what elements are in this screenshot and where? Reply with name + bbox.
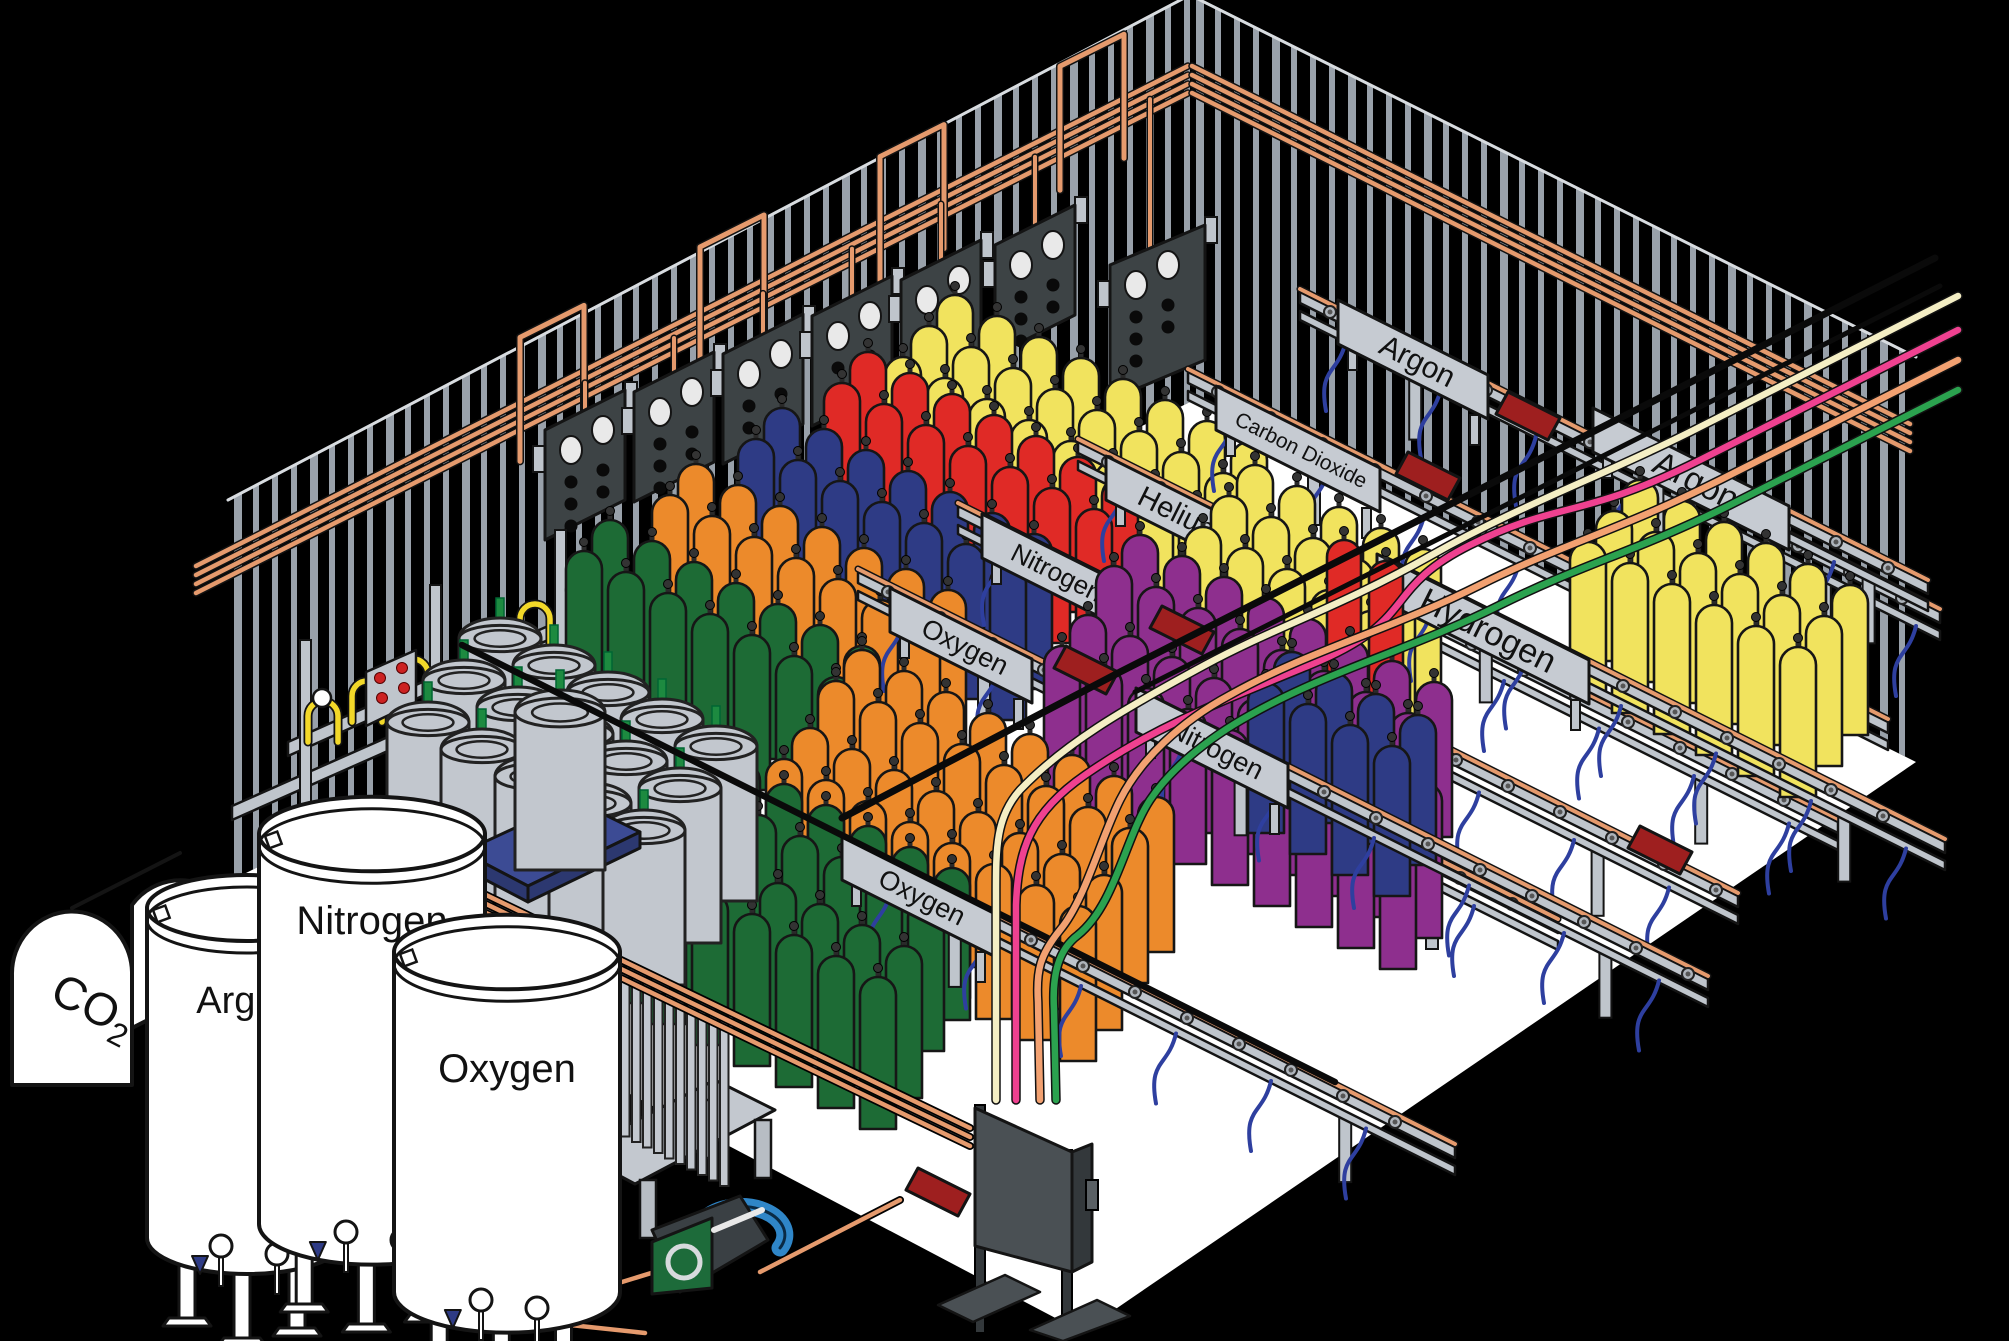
cylinder-valve <box>734 472 743 481</box>
cylinder-valve <box>1051 376 1060 385</box>
rail-valve <box>1714 888 1719 893</box>
cylinder-valve <box>1309 525 1318 534</box>
sign-post <box>1270 804 1279 834</box>
panel-port <box>597 486 610 499</box>
cylinder-valve <box>1178 543 1187 552</box>
panel-gauge <box>592 416 614 444</box>
sign-post <box>1571 700 1580 730</box>
cylinder-valve <box>925 313 934 322</box>
cylinder-valve <box>920 510 929 519</box>
rail-valve <box>1558 810 1563 815</box>
wall-stud <box>1329 58 1335 477</box>
rail-valve <box>1673 710 1678 715</box>
cylinder-valve <box>942 679 951 688</box>
rail-valve <box>1834 540 1839 545</box>
cylinder-valve <box>776 493 785 502</box>
cylinder-valve <box>864 339 873 348</box>
cylinder-valve <box>899 344 908 353</box>
wall-stud <box>1899 343 1905 760</box>
cylinder-valve <box>967 334 976 343</box>
panel-gauge <box>1010 251 1032 279</box>
cylinder-valve <box>890 757 899 766</box>
cylinder-valve <box>1382 548 1391 557</box>
cylinder-valve <box>848 736 857 745</box>
rail-valve <box>1426 842 1431 847</box>
wall-stud <box>1272 30 1280 449</box>
panel-port <box>654 482 667 495</box>
cylinder-valve <box>1177 439 1186 448</box>
cylinder-valve <box>1035 324 1044 333</box>
cylinder-valve <box>1067 428 1076 437</box>
gas-plant-illustration: ArgonCarbon DioxideHeliumNitrogenOxygenA… <box>0 0 2009 1341</box>
panel-bracket <box>622 408 634 434</box>
vaporizer-tube <box>720 1016 729 1186</box>
cylinder-valve <box>1084 602 1093 611</box>
cylinder-valve <box>1652 519 1661 528</box>
panel-port <box>597 464 610 477</box>
cylinder-valve <box>1135 418 1144 427</box>
cylinder-valve <box>1804 551 1813 560</box>
cylinder-valve <box>860 535 869 544</box>
wall-stud <box>1557 172 1563 590</box>
cylinder-valve <box>864 813 873 822</box>
cylinder-valve <box>1119 366 1128 375</box>
panel-port <box>654 460 667 473</box>
cylinder-valve <box>1267 504 1276 513</box>
sign-post <box>976 952 985 982</box>
cylinder-valve <box>1710 592 1719 601</box>
cylinder-valve <box>1293 473 1302 482</box>
tank-label: Oxygen <box>438 1047 576 1091</box>
cylinder-valve <box>941 365 950 374</box>
cylinder-valve <box>862 437 871 446</box>
rail-valve <box>1424 494 1429 499</box>
cylinder-valve <box>948 855 957 864</box>
cylinder-valve <box>664 580 673 589</box>
cylinder-valve <box>1006 454 1015 463</box>
cylinder-valve <box>1220 564 1229 573</box>
valve-wheel <box>335 1221 357 1243</box>
rim-tab <box>265 832 282 849</box>
cylinder-valve <box>1058 633 1067 642</box>
panel-port <box>1130 355 1143 368</box>
rail-valve <box>1289 1068 1294 1073</box>
cylinder-valve <box>1084 794 1093 803</box>
cylinder-valve <box>1016 820 1025 829</box>
rail-valve <box>1506 784 1511 789</box>
panel-bracket <box>1205 217 1217 243</box>
oxygen-bulk-tank: Oxygen <box>394 915 620 1341</box>
cylinder-valve <box>874 964 883 973</box>
panel-bracket <box>533 446 545 472</box>
cylinder-valve <box>948 381 957 390</box>
cylinder-valve <box>1372 681 1381 690</box>
control-lamp <box>375 673 386 684</box>
vaporizer-tube <box>676 994 685 1164</box>
cylinder-valve <box>1694 540 1703 549</box>
panel-port <box>1162 299 1175 312</box>
wall-stud <box>1367 77 1373 496</box>
cylinder-valve <box>708 503 717 512</box>
rail-valve <box>1730 772 1735 777</box>
cylinder-valve <box>932 778 941 787</box>
cylinder-valve <box>948 830 957 839</box>
cylinder-valve <box>900 933 909 942</box>
rail-valve <box>1478 868 1483 873</box>
cylinder-valve <box>1668 571 1677 580</box>
tank-body <box>394 952 620 1333</box>
rail-valve <box>1678 746 1683 751</box>
panel-gauge <box>916 286 938 314</box>
cylinder-valve <box>1346 712 1355 721</box>
panel-gauge <box>827 322 849 350</box>
panel-port <box>743 400 756 413</box>
cylinder-valve <box>790 922 799 931</box>
cylinder-valve <box>1100 862 1109 871</box>
rail-valve <box>1454 758 1459 763</box>
cylinder-valve <box>1241 535 1250 544</box>
vaporizer-tube <box>709 1011 718 1181</box>
panel-port <box>654 438 667 451</box>
cylinder-valve <box>1184 696 1193 705</box>
cylinder-valve <box>1000 752 1009 761</box>
cylinder-valve <box>1346 627 1355 636</box>
rail-valve <box>1626 720 1631 725</box>
rim-tab <box>400 950 417 967</box>
cylinder-valve <box>806 715 815 724</box>
cylinder-valve <box>780 771 789 780</box>
wall-stud <box>1253 20 1259 439</box>
valve-wheel <box>470 1289 492 1311</box>
cylinder-valve <box>878 489 887 498</box>
cylinder-valve <box>822 792 831 801</box>
vaporizer-tube <box>643 978 652 1148</box>
rail-valve <box>1829 788 1834 793</box>
panel-gauge <box>1157 251 1179 279</box>
panel-bracket <box>711 370 723 396</box>
panel-port <box>565 498 578 511</box>
cylinder-valve <box>1093 397 1102 406</box>
cylinder-valve <box>922 412 931 421</box>
rail-valve <box>1530 894 1535 899</box>
cylinder-valve <box>1283 556 1292 565</box>
cylinder-valve <box>816 612 825 621</box>
gauge <box>313 689 331 707</box>
cylinder-valve <box>790 643 799 652</box>
cylinder-valve <box>1762 530 1771 539</box>
cylinder-valve <box>774 591 783 600</box>
rail-valve <box>1725 736 1730 741</box>
cylinder-valve <box>874 689 883 698</box>
cylinder-valve <box>1636 467 1645 476</box>
cylinder-valve <box>1058 841 1067 850</box>
cylinder-valve <box>780 746 789 755</box>
cylinder-valve <box>1736 561 1745 570</box>
cylinder-valve <box>1032 872 1041 881</box>
cylinder-valve <box>832 943 841 952</box>
cylinder-valve <box>1388 733 1397 742</box>
panel-gauge <box>1042 231 1064 259</box>
tank-foot <box>280 1304 328 1312</box>
tank-foot <box>163 1318 211 1326</box>
cylinder-valve <box>1090 496 1099 505</box>
cylinder-valve <box>1025 407 1034 416</box>
panel-bracket <box>1098 281 1110 307</box>
cylinder-valve <box>706 601 715 610</box>
control-lamp <box>399 683 410 694</box>
gas-plant-scene: ArgonCarbon DioxideHeliumNitrogenOxygenA… <box>0 0 2009 1341</box>
cylinder-valve <box>951 282 960 291</box>
panel-port <box>686 426 699 439</box>
cylinder-valve <box>1362 679 1371 688</box>
cylinder-valve <box>1152 574 1161 583</box>
cylinder-valve <box>1199 514 1208 523</box>
cylinder-valve <box>1009 355 1018 364</box>
cylinder-valve <box>988 500 997 509</box>
cylinder-valve <box>1126 623 1135 632</box>
cylinder-valve <box>944 577 953 586</box>
cylinder-valve <box>1030 521 1039 530</box>
rail-valve <box>1881 814 1886 819</box>
panel-bracket <box>1075 197 1087 223</box>
cylinder-valve <box>1778 582 1787 591</box>
wall-stud <box>1234 11 1240 430</box>
cylinder-valve <box>692 451 701 460</box>
wall-stud <box>1291 39 1297 458</box>
panel-gauge <box>770 340 792 368</box>
cylinder-valve <box>778 395 787 404</box>
tank-foot <box>342 1324 390 1332</box>
cylinder-valve <box>1340 527 1349 536</box>
rail-valve <box>1610 836 1615 841</box>
rail-valve <box>1393 1120 1398 1125</box>
cylinder-valve <box>984 700 993 709</box>
rail-post <box>1838 816 1850 882</box>
vaporizer-tube <box>632 972 641 1142</box>
rim-tab <box>153 906 170 923</box>
cylinder-valve <box>1752 613 1761 622</box>
cylinder-valve <box>946 479 955 488</box>
cylinder-valve <box>993 303 1002 312</box>
cylinder-valve <box>906 834 915 843</box>
cylinder-valve <box>836 468 845 477</box>
rail-valve <box>1582 920 1587 925</box>
control-lamp <box>397 663 408 674</box>
cylinder-valve <box>732 570 741 579</box>
wall-stud <box>1215 1 1221 420</box>
cylinder-valve <box>906 360 915 369</box>
vaporizer-tube <box>687 1000 696 1170</box>
rail-post <box>1592 850 1604 916</box>
rail-valve <box>1328 310 1333 315</box>
cylinder-valve <box>1077 345 1086 354</box>
cylinder-valve <box>794 447 803 456</box>
rail-valve <box>1133 990 1138 995</box>
panel-port <box>1130 333 1143 346</box>
panel-bracket <box>889 296 901 322</box>
cylinder-valve <box>796 823 805 832</box>
cylinder-valve <box>622 559 631 568</box>
rail-valve <box>1634 946 1639 951</box>
cylinder-valve <box>834 566 843 575</box>
vaporizer-tube <box>654 983 663 1153</box>
cylinder-valve <box>1048 475 1057 484</box>
panel-gauge <box>649 398 671 426</box>
cylinder-valve <box>1404 700 1413 709</box>
cylinder-valve <box>1820 603 1829 612</box>
cylinder-valve <box>1377 515 1386 524</box>
cylinder-valve <box>1251 452 1260 461</box>
panel-port <box>1047 301 1060 314</box>
panel-gauge <box>738 360 760 388</box>
cylinder-valve <box>1110 553 1119 562</box>
rail-valve <box>1777 762 1782 767</box>
cylinder-valve <box>906 809 915 818</box>
cylinder-valve <box>816 891 825 900</box>
cylinder-valve <box>752 426 761 435</box>
cylinder-valve <box>1225 483 1234 492</box>
cylinder-valve <box>822 767 831 776</box>
cylinder-valve <box>902 556 911 565</box>
rail-valve <box>1185 1016 1190 1021</box>
cylinder-valve <box>880 391 889 400</box>
rail-valve <box>1528 546 1533 551</box>
panel-port <box>1047 279 1060 292</box>
cylinder-valve <box>750 524 759 533</box>
panel-gauge <box>1125 271 1147 299</box>
cylinder-valve <box>792 545 801 554</box>
panel-box <box>1086 1180 1098 1210</box>
valve-wheel <box>526 1297 548 1319</box>
panel-bracket <box>800 332 812 358</box>
cylinder-valve <box>1194 595 1203 604</box>
tank-foot <box>273 1328 321 1336</box>
cylinder-valve <box>990 402 999 411</box>
rail-valve <box>1886 566 1891 571</box>
rail-valve <box>1029 938 1034 943</box>
rail-post <box>1599 952 1611 1018</box>
panel-gauge <box>560 436 582 464</box>
wall-stud <box>1348 68 1356 487</box>
cylinder-valve <box>1414 702 1423 711</box>
rail-valve <box>1621 684 1626 689</box>
cylinder-valve <box>774 870 783 879</box>
cylinder-valve <box>1278 637 1287 646</box>
panel-gauge <box>948 266 970 294</box>
rail-valve <box>1341 1094 1346 1099</box>
panel-bracket <box>981 232 993 258</box>
cylinder-valve <box>1236 616 1245 625</box>
cylinder-valve <box>690 549 699 558</box>
cylinder-valve <box>1219 460 1228 469</box>
rail-valve <box>1237 1042 1242 1047</box>
cylinder-valve <box>904 458 913 467</box>
panel-gauge <box>681 378 703 406</box>
cylinder-valve <box>606 507 615 516</box>
cylinder-valve <box>1110 763 1119 772</box>
cylinder-valve <box>832 668 841 677</box>
rail-valve <box>1686 972 1691 977</box>
panel-gauge <box>859 302 881 330</box>
control-lamp <box>377 693 388 704</box>
cylinder-valve <box>900 658 909 667</box>
wall-stud <box>1500 144 1508 562</box>
panel-port <box>1015 313 1028 326</box>
vaporizer-tube <box>665 989 674 1159</box>
panel-port <box>1015 291 1028 304</box>
cylinder-valve <box>1161 387 1170 396</box>
stand-leg <box>755 1120 771 1178</box>
cylinder-valve <box>983 386 992 395</box>
cylinder-valve <box>858 637 867 646</box>
panel-port <box>565 476 578 489</box>
cylinder-valve <box>916 710 925 719</box>
vaporizer-tube <box>698 1005 707 1175</box>
cylinder-valve <box>1032 423 1041 432</box>
panel-port <box>1162 321 1175 334</box>
panel-port <box>1130 311 1143 324</box>
vaporizer-tube <box>621 967 630 1137</box>
cylinder-valve <box>1100 654 1109 663</box>
cylinder-valve <box>1262 585 1271 594</box>
cylinder-valve <box>1846 572 1855 581</box>
cylinder-valve <box>974 799 983 808</box>
cylinder-valve <box>1335 494 1344 503</box>
rail-valve <box>1081 964 1086 969</box>
wall-stud <box>1386 87 1392 505</box>
cylinder-valve <box>648 528 657 537</box>
cylinder-valve <box>858 912 867 921</box>
wall-stud <box>1462 125 1468 543</box>
panel-bracket <box>983 261 995 287</box>
cylinder-valve <box>580 538 589 547</box>
cylinder-valve <box>666 482 675 491</box>
cylinder-valve <box>820 416 829 425</box>
cylinder-valve <box>1430 669 1439 678</box>
rail-valve <box>1322 790 1327 795</box>
cylinder-valve <box>1136 522 1145 531</box>
cylinder-valve <box>818 514 827 523</box>
cylinder-valve <box>1288 639 1297 648</box>
rail-valve <box>1374 816 1379 821</box>
cylinder-valve <box>958 731 967 740</box>
wall-stud <box>1310 49 1316 468</box>
cylinder-valve <box>838 370 847 379</box>
cylinder-valve <box>1794 634 1803 643</box>
cylinder-valve <box>964 433 973 442</box>
cylinder-valve <box>748 622 757 631</box>
sign-post <box>1470 415 1479 445</box>
cylinder-valve <box>864 788 873 797</box>
valve-wheel <box>210 1235 232 1257</box>
